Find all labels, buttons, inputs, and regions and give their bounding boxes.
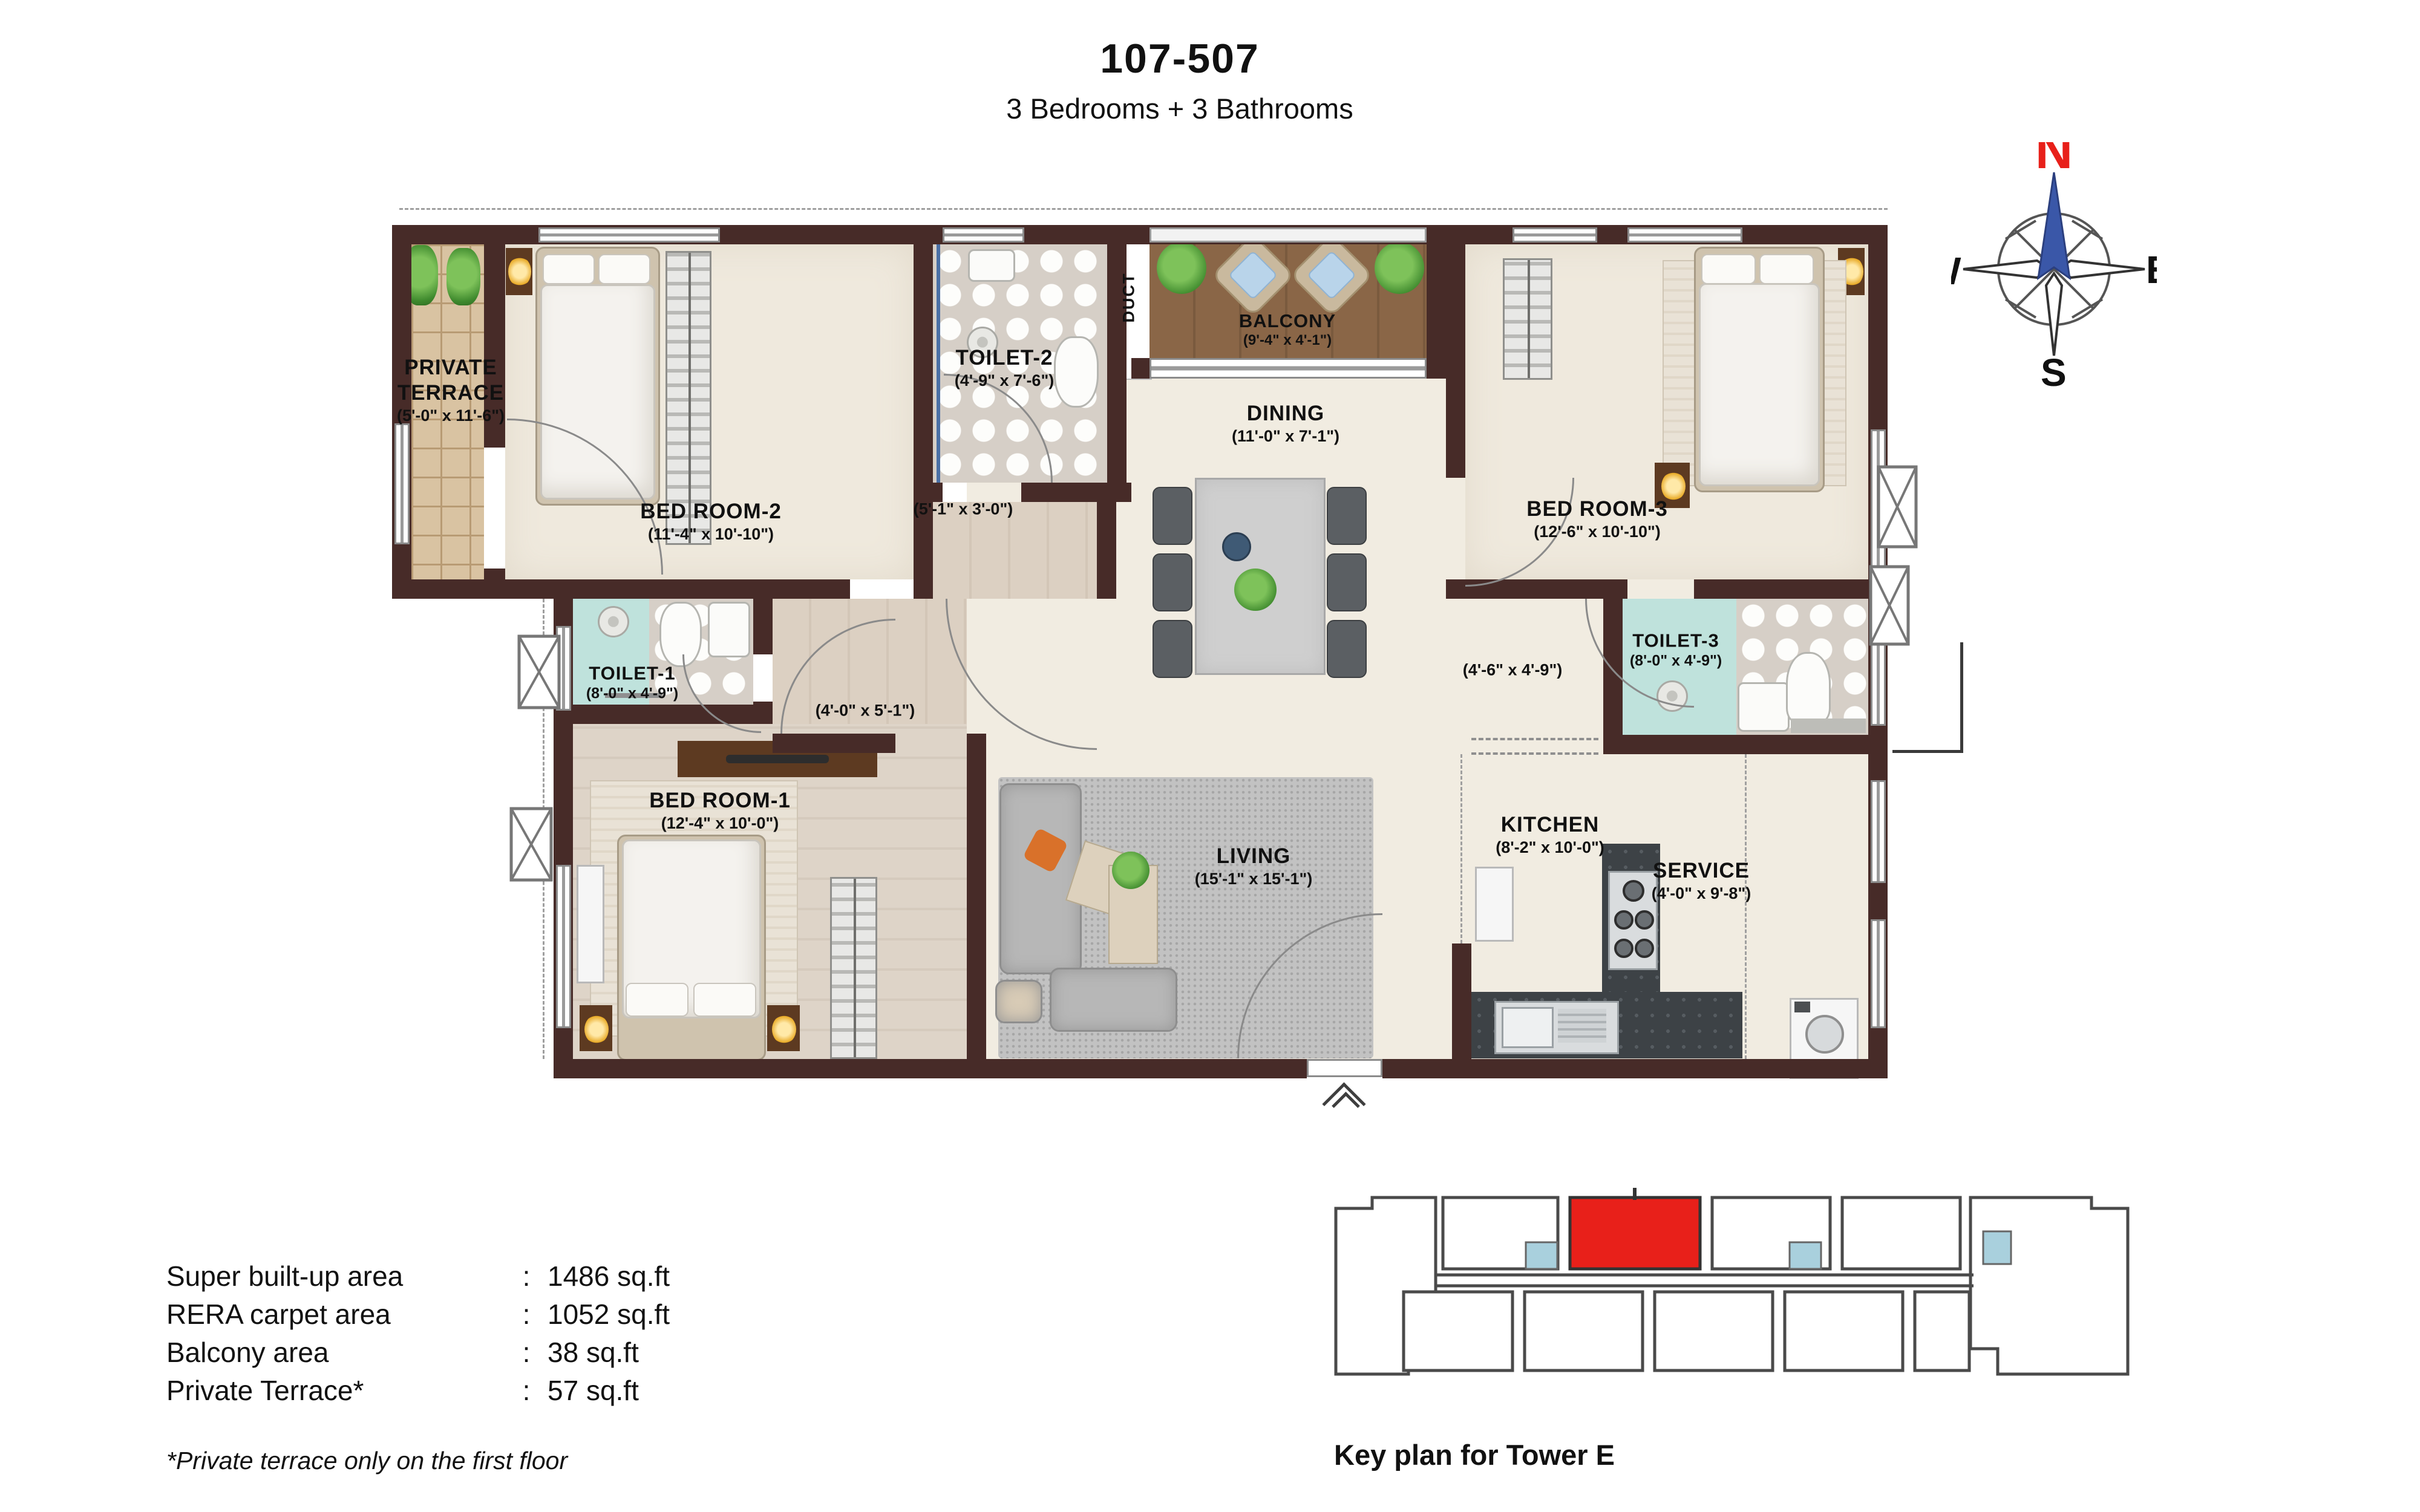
label-toilet-3: TOILET-3 (8'-0" x 4'-9") [1630, 629, 1722, 670]
label-corridor-dims: (4'-0" x 5'-1") [816, 702, 915, 720]
terrace-footnote: *Private terrace only on the first floor [166, 1447, 567, 1475]
label-bed-room-2: BED ROOM-2 (11'-4" x 10'-10") [640, 499, 782, 544]
table-row: RERA carpet area : 1052 sq.ft [166, 1295, 670, 1333]
label-living: LIVING (15'-1" x 15'-1") [1195, 844, 1313, 888]
table-row: Super built-up area : 1486 sq.ft [166, 1257, 670, 1295]
table-row: Private Terrace* : 57 sq.ft [166, 1371, 670, 1409]
table-row: Balcony area : 38 sq.ft [166, 1333, 670, 1371]
label-foyer-dims: (5'-1" x 3'-0") [914, 500, 1013, 519]
label-service: SERVICE (4'-0" x 9'-8") [1652, 858, 1751, 903]
label-kitchen: KITCHEN (8'-2" x 10'-0") [1496, 812, 1604, 857]
floor-plan-page: 107-507 3 Bedrooms + 3 Bathrooms N E W S [0, 0, 2420, 1512]
label-lobby-dims: (4'-6" x 4'-9") [1463, 661, 1563, 680]
area-statement-table: Super built-up area : 1486 sq.ft RERA ca… [166, 1257, 670, 1409]
label-bed-room-3: BED ROOM-3 (12'-6" x 10'-10") [1526, 497, 1668, 541]
label-toilet-2: TOILET-2 (4'-9" x 7'-6") [955, 345, 1055, 390]
label-bed-room-1: BED ROOM-1 (12'-4" x 10'-0") [649, 788, 791, 833]
label-balcony: BALCONY (9'-4" x 4'-1") [1239, 310, 1336, 350]
label-private-terrace: PRIVATE TERRACE (5'-0" x 11'-6") [393, 355, 508, 425]
key-plan-caption: Key plan for Tower E [1334, 1438, 1615, 1471]
key-plan-highlighted-unit [1570, 1198, 1700, 1269]
key-plan [1331, 1184, 2133, 1396]
label-duct: DUCT [1120, 273, 1139, 323]
label-toilet-1: TOILET-1 (8'-0" x 4'-9") [586, 662, 678, 702]
label-dining: DINING (11'-0" x 7'-1") [1232, 401, 1339, 446]
